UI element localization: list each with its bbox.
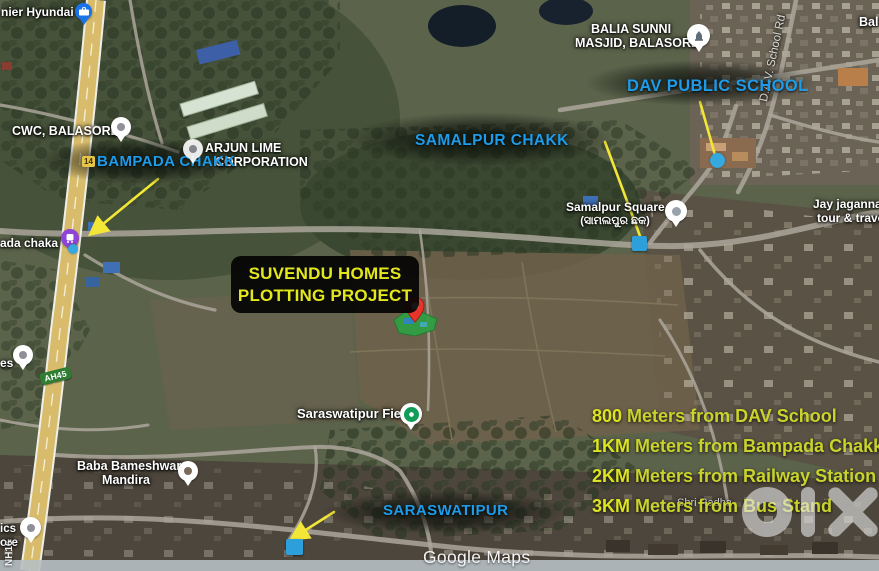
samalpur-callout: SAMALPUR CHAKK	[415, 132, 569, 150]
bal-partial-label: Bal	[859, 15, 878, 29]
ics-poi-pin-icon	[20, 517, 41, 538]
temple-pin-icon	[178, 461, 198, 481]
olx-l-icon	[801, 487, 815, 537]
mosque-icon	[693, 30, 705, 42]
olx-watermark-logo	[742, 487, 879, 537]
route-14-badge: 14	[82, 156, 95, 167]
distance-row: 2KM Meters from Railway Station	[592, 467, 879, 485]
saraswatipur-blue-marker	[286, 539, 303, 555]
nh16-road-label: NH16	[4, 540, 15, 566]
hyundai-label: nier Hyundai	[1, 5, 74, 19]
cwc-label: CWC, BALASORE	[12, 124, 119, 138]
cwc-poi-pin-icon	[111, 117, 131, 137]
project-title-line1: SUVENDU HOMES	[237, 263, 413, 285]
bus-icon	[66, 234, 74, 243]
distance-row: 800 Meters from DAV School	[592, 407, 879, 425]
saraswatipur-callout: SARASWATIPUR	[383, 502, 508, 519]
samalpur-blue-marker	[632, 236, 647, 251]
distance-row: 1KM Meters from Bampada Chakk	[592, 437, 879, 455]
arjun-poi-pin-icon	[183, 139, 203, 159]
project-title-card: SUVENDU HOMES PLOTTING PROJECT	[231, 256, 419, 313]
bampada-callout: BAMPADA CHAKK	[97, 153, 236, 170]
es-partial-label: es	[0, 356, 13, 370]
chaka-blue-dot	[68, 244, 78, 254]
es-poi-pin-icon	[13, 345, 33, 365]
pond	[428, 5, 496, 47]
briefcase-icon	[79, 7, 89, 16]
mandira-label: Baba Bameshwar Mandira	[77, 459, 175, 487]
park-pin-icon	[400, 403, 422, 425]
dav-blue-dot	[710, 153, 725, 168]
chaka-label: ada chaka	[0, 236, 58, 250]
field-label: Saraswatipur Field	[297, 407, 413, 421]
dav-callout: DAV PUBLIC SCHOOL	[627, 77, 809, 96]
project-title-line2: PLOTTING PROJECT	[237, 285, 413, 307]
jay-tours-label: Jay jagannath tour & travels	[813, 197, 879, 225]
masjid-label: BALIA SUNNI MASJID, BALASORE	[575, 22, 687, 50]
mosque-pin-icon	[687, 24, 710, 47]
olx-o-icon	[742, 487, 792, 537]
map-screenshot[interactable]: nier Hyundai BALIA SUNNI MASJID, BALASOR…	[0, 0, 879, 571]
google-maps-attribution: Google Maps	[423, 547, 530, 568]
hyundai-store-pin-icon	[75, 3, 92, 20]
olx-x-icon	[824, 487, 879, 537]
samalpur-square-pin-icon	[665, 200, 687, 222]
samalpur-square-label: Samalpur Square (ସାମଲପୁର ଛକ)	[566, 200, 664, 228]
